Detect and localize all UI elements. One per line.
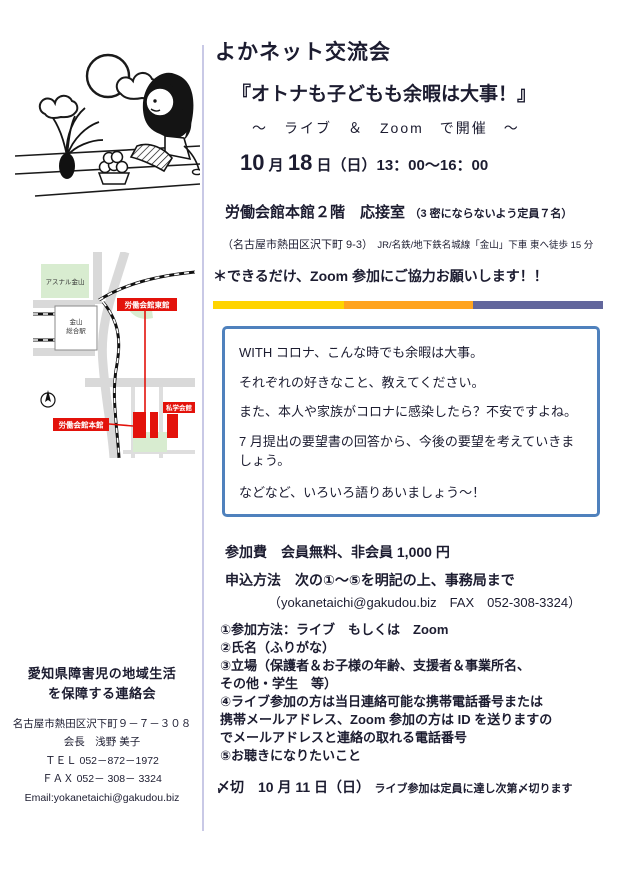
map-label-east-hall: 労働会館東館: [125, 300, 170, 310]
event-time: 日（日）13：00～16：00: [317, 157, 489, 174]
map-label-main-hall: 労働会館本館: [59, 420, 104, 430]
event-month-label: 月: [269, 157, 284, 174]
organization-address: 名古屋市熱田区沢下町９－７－３０８: [6, 715, 198, 733]
compass-icon: [41, 390, 55, 407]
moon-viewing-illustration: [15, 46, 200, 198]
topic-line: それぞれの好きなこと、教えてください。: [239, 373, 583, 393]
organization-tel: ＴＥＬ 052－872－1972: [6, 752, 198, 770]
application-item: ⑤お聴きになりたいこと: [220, 747, 612, 765]
dango-offering: [99, 152, 129, 185]
flyer-page: アスナル金山 金山 総合駅 労: [0, 0, 620, 872]
bar-segment-purple: [473, 301, 603, 309]
topic-line: 7 月提出の要望書の回答から、今後の要望を考えていきましょう。: [239, 432, 583, 471]
organization-block: 愛知県障害児の地域生活 を保障する連絡会 名古屋市熱田区沢下町９－７－３０８ 会…: [6, 664, 198, 807]
application-item: ③立場（保護者＆お子様の年齢、支援者＆事業所名、: [220, 657, 612, 675]
venue-name: 労働会館本館２階 応接室: [225, 204, 405, 221]
access-map: アスナル金山 金山 総合駅 労: [33, 252, 195, 458]
application-item: 携帯メールアドレス、Zoom 参加の方は ID を送りますの: [220, 711, 612, 729]
venue-access: （名古屋市熱田区沢下町 9-3） JR/名鉄/地下鉄名城線「金山」下車 東へ徒歩…: [222, 237, 612, 253]
map-station: 金山 総合駅: [55, 306, 97, 350]
susuki-plant: [53, 108, 103, 179]
venue-route: JR/名鉄/地下鉄名城線「金山」下車 東へ徒歩 15 分: [377, 240, 593, 251]
application-item: でメールアドレスと連絡の取れる電話番号: [220, 729, 612, 747]
application-item: ①参加方法：ライブ もしくは Zoom: [220, 621, 612, 639]
discussion-topics-box: WITH コロナ、こんな時でも余暇は大事。 それぞれの好きなこと、教えてください…: [222, 326, 600, 517]
deadline-note: ライブ参加は定員に達し次第〆切ります: [375, 783, 573, 795]
map-label-shigaku-hall: 私学会館: [165, 403, 193, 412]
application-item: ④ライブ参加の方は当日連絡可能な携帯電話番号または: [220, 693, 612, 711]
venue-address: （名古屋市熱田区沢下町 9-3）: [222, 239, 373, 251]
organization-name: 愛知県障害児の地域生活 を保障する連絡会: [6, 664, 198, 703]
venue: 労働会館本館２階 応接室 （3 密にならないよう定員７名）: [225, 203, 612, 224]
map-label-station-2: 総合駅: [66, 326, 86, 335]
event-format: ～ ライブ ＆ Zoom で開催 ～: [252, 119, 612, 137]
event-subtitle: 『オトナも子どもも余暇は大事！』: [232, 83, 612, 107]
organization-email: Email:yokanetaichi@gakudou.biz: [6, 789, 198, 807]
application-deadline: 〆切 10 月 11 日（日） ライブ参加は定員に達し次第〆切ります: [216, 777, 612, 797]
application-item: その他・学生 等）: [220, 675, 612, 693]
topic-line: などなど、いろいろ語りあいましょう～！: [239, 483, 583, 503]
event-month: 10: [240, 150, 264, 175]
deadline-date: 〆切 10 月 11 日（日）: [216, 779, 370, 795]
organization-contact: 名古屋市熱田区沢下町９－７－３０８ 会長 浅野 美子 ＴＥＬ 052－872－1…: [6, 715, 198, 807]
event-datetime: 10 月 18 日（日）13：00～16：00: [240, 150, 612, 179]
zoom-request-note: ＊できるだけ、Zoom 参加にご協力お願いします！！: [213, 267, 612, 285]
map-label-station-1: 金山: [70, 317, 83, 326]
application-contact: （yokanetaichi@gakudou.biz FAX 052-308-33…: [268, 594, 612, 611]
topic-line: また、本人や家族がコロナに感染したら？不安ですよね。: [239, 402, 583, 422]
application-method-heading: 申込方法 次の①～⑤を明記の上、事務局まで: [225, 571, 612, 589]
event-title: よかネット交流会: [215, 40, 612, 65]
application-items: ①参加方法：ライブ もしくは Zoom ②氏名（ふりがな） ③立場（保護者＆お子…: [220, 621, 612, 765]
organization-fax: ＦＡＸ 052－ 308－ 3324: [6, 770, 198, 788]
decorative-color-bar: [213, 301, 603, 309]
venue-capacity-note: （3 密にならないよう定員７名）: [409, 208, 572, 220]
participation-fee: 参加費 会員無料、非会員 1,000 円: [225, 543, 612, 561]
application-item: ②氏名（ふりがな）: [220, 639, 612, 657]
column-divider: [202, 45, 204, 831]
organization-name-line1: 愛知県障害児の地域生活: [6, 664, 198, 684]
bar-segment-orange: [344, 301, 473, 309]
map-label-asunal: アスナル金山: [46, 277, 85, 286]
event-day: 18: [288, 150, 312, 175]
topic-line: WITH コロナ、こんな時でも余暇は大事。: [239, 343, 583, 363]
organization-name-line2: を保障する連絡会: [6, 684, 198, 704]
main-content: よかネット交流会 『オトナも子どもも余暇は大事！』 ～ ライブ ＆ Zoom で…: [212, 40, 612, 797]
bar-segment-yellow: [213, 301, 344, 309]
organization-chairman: 会長 浅野 美子: [6, 733, 198, 751]
